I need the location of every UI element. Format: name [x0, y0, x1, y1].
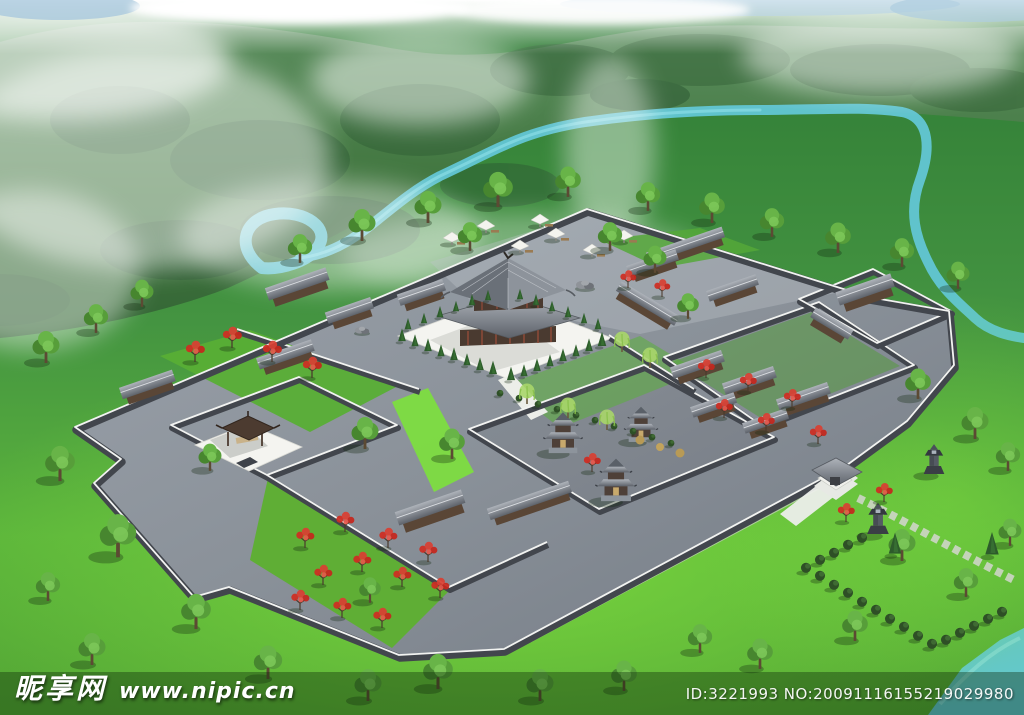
watermark-id: ID:3221993 NO:20091116155219029980 [686, 685, 1014, 703]
aerial-rendering-scene: 昵享网 www.nipic.cn ID:3221993 NO:200911161… [0, 0, 1024, 715]
sky-band [0, 0, 1024, 54]
site-url-text: www.nipic.cn [119, 679, 296, 704]
site-logo-text: 昵享网 [14, 667, 107, 707]
gate-doorway [830, 477, 840, 485]
watermark-site: 昵享网 www.nipic.cn [14, 667, 296, 707]
scene-canvas [0, 0, 1024, 715]
